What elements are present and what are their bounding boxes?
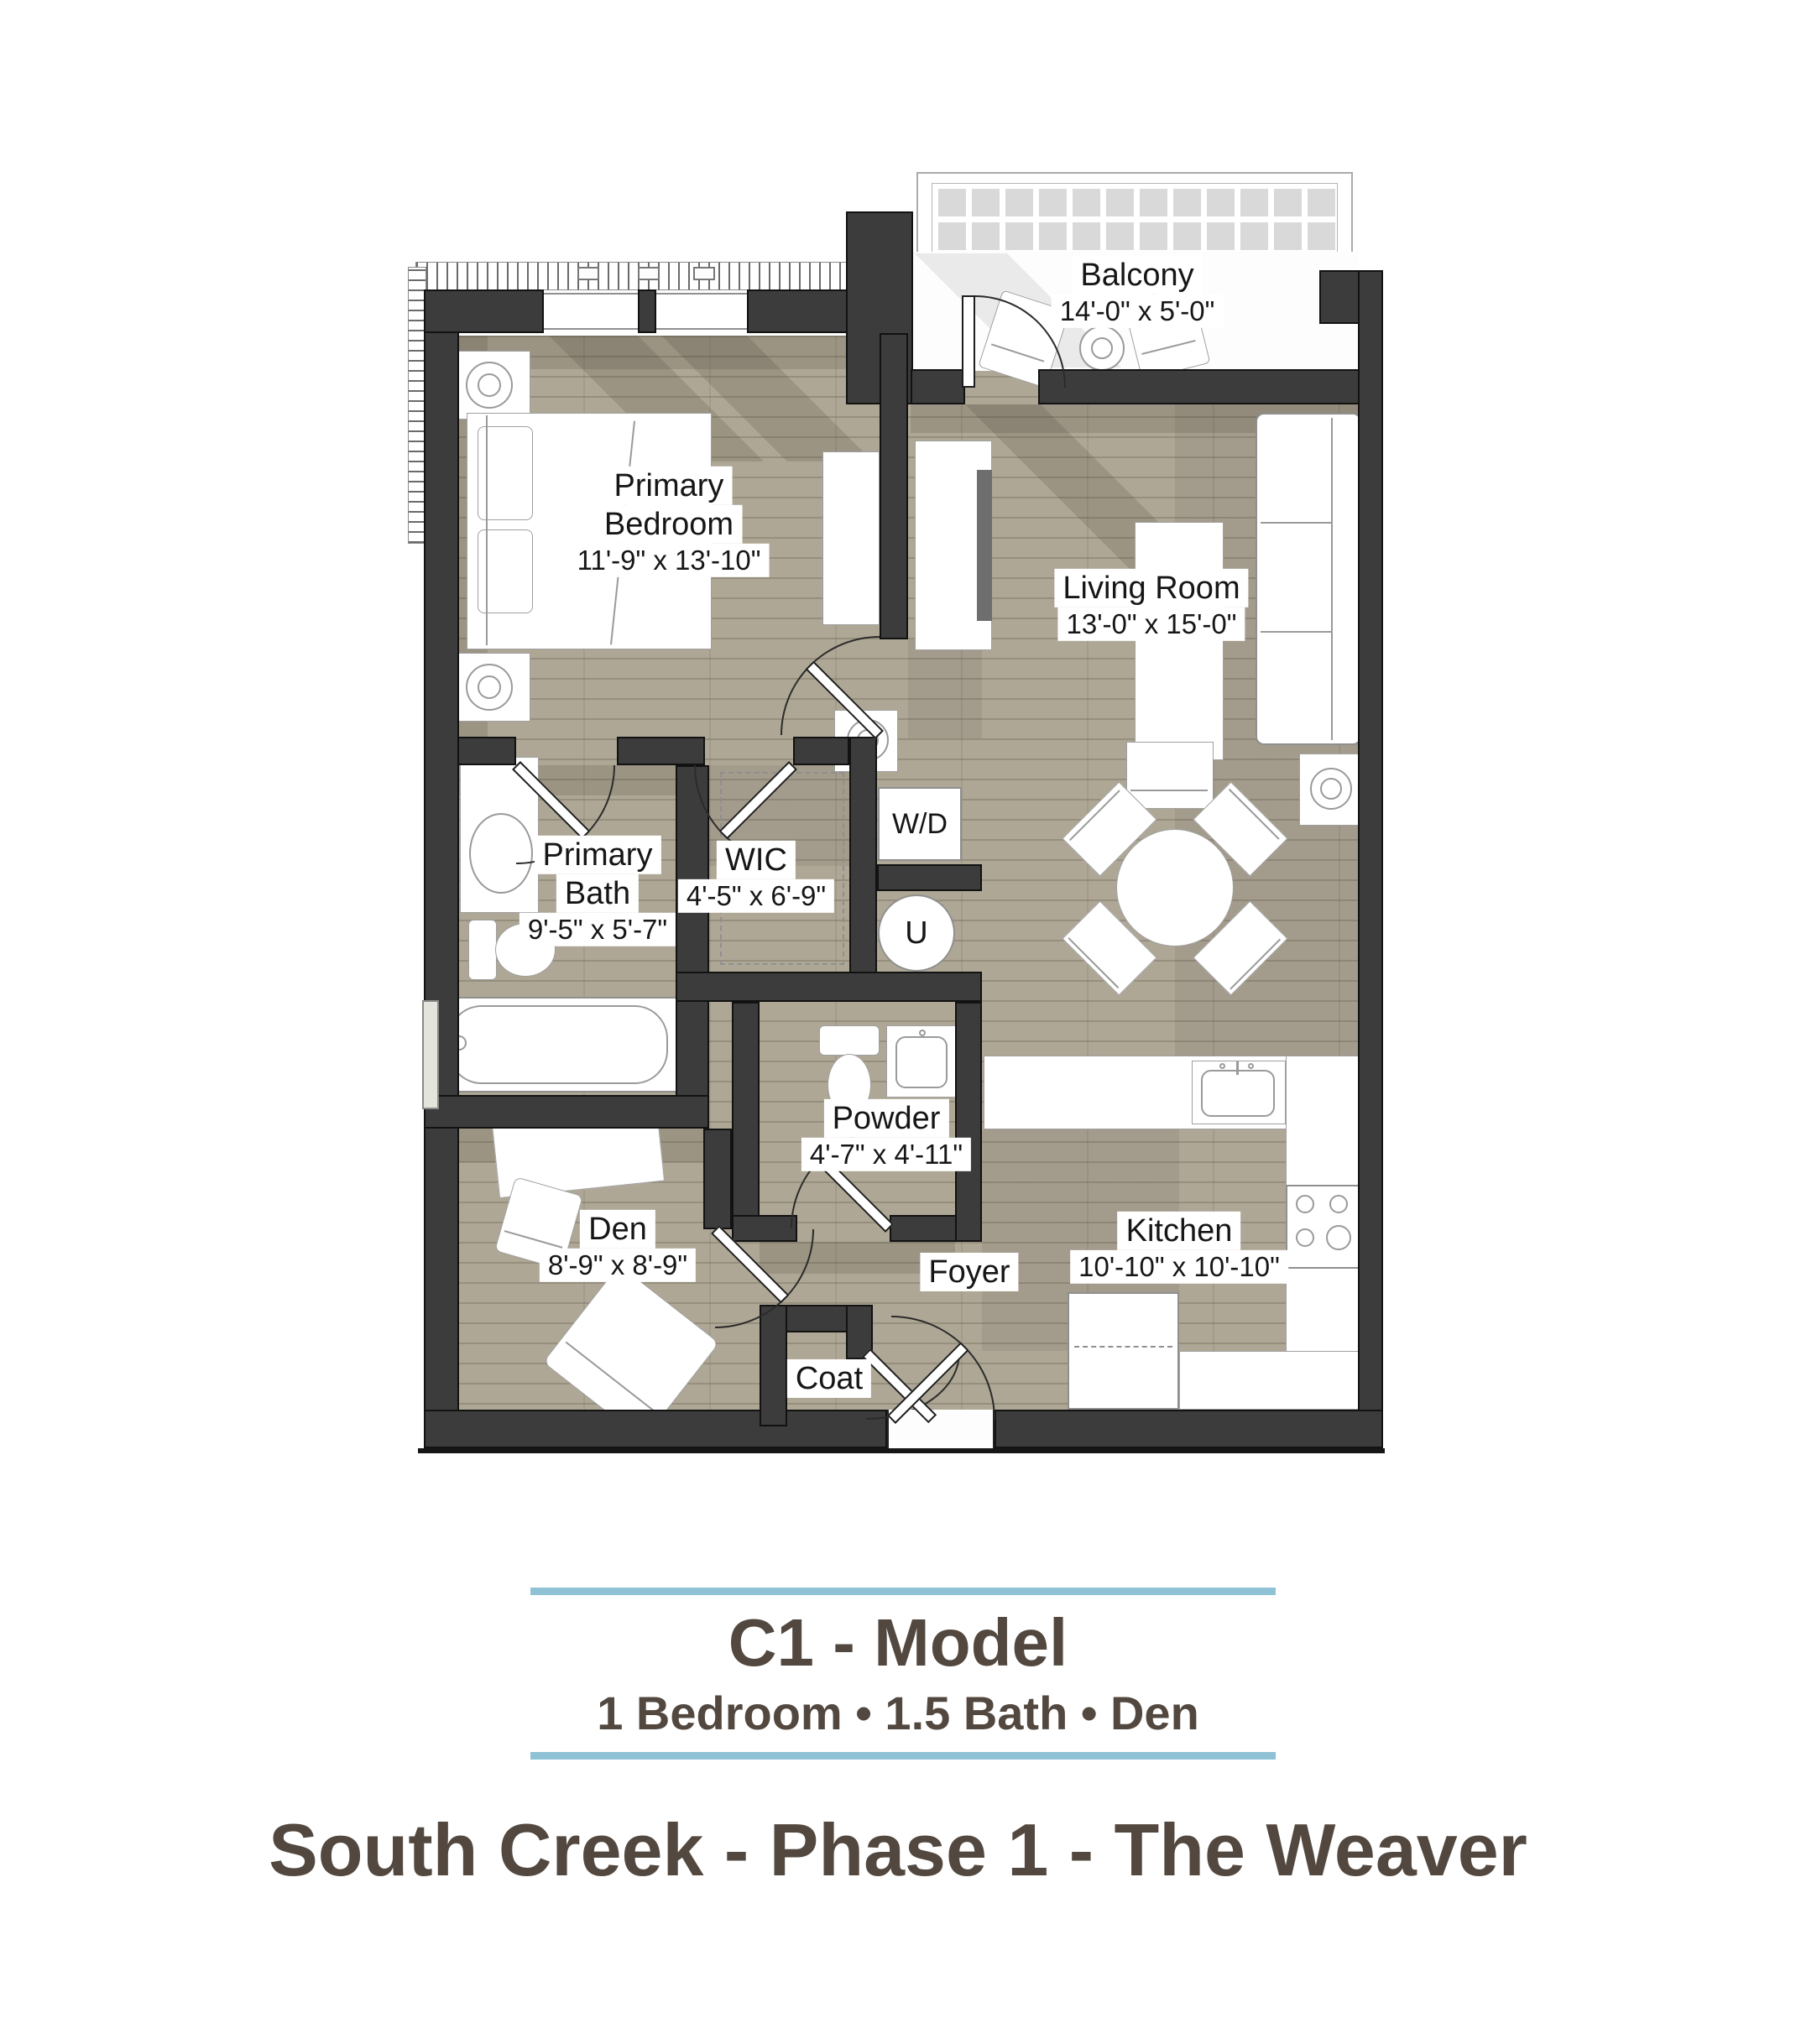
room-label-balcony: Balcony 14'-0" x 5'-0" xyxy=(1052,256,1224,328)
room-name: Powder xyxy=(824,1099,949,1138)
sofa-cushion-line xyxy=(1261,522,1331,524)
room-label-wic: WIC 4'-5" x 6'-9" xyxy=(678,841,834,913)
room-name: Coat xyxy=(787,1359,871,1398)
room-name: Primary xyxy=(535,836,661,874)
wall xyxy=(911,369,965,404)
room-label-kitchen: Kitchen 10'-10" x 10'-10" xyxy=(1070,1212,1288,1284)
wall xyxy=(1038,369,1364,404)
room-dims: 13'-0" x 15'-0" xyxy=(1058,607,1245,641)
washer-dryer-unit: W/D xyxy=(878,787,962,861)
room-label-foyer: Foyer xyxy=(920,1253,1018,1291)
window xyxy=(544,293,638,330)
powder-vanity xyxy=(886,1025,957,1098)
wall xyxy=(424,1095,709,1129)
wall xyxy=(877,864,982,891)
wall xyxy=(1358,270,1383,1448)
trellis-pergola xyxy=(932,183,1338,257)
window xyxy=(656,293,747,330)
wall xyxy=(424,289,459,1448)
wall xyxy=(424,289,544,333)
wall xyxy=(457,737,516,765)
room-label-living-room: Living Room 13'-0" x 15'-0" xyxy=(1054,569,1248,641)
divider-rule-top xyxy=(530,1588,1276,1595)
kitchen-counter-bottom xyxy=(1179,1351,1360,1410)
room-name: Bedroom xyxy=(596,505,742,544)
wall xyxy=(880,333,908,639)
unit-title: C1 - Model xyxy=(0,1601,1796,1685)
room-dims: 4'-5" x 6'-9" xyxy=(678,879,834,913)
balcony-table-inner xyxy=(1091,337,1113,359)
lamp-icon-inner xyxy=(1320,778,1342,800)
sofa-back-line xyxy=(1331,418,1333,740)
room-dims: 14'-0" x 5'-0" xyxy=(1052,295,1224,328)
room-dims: 11'-9" x 13'-10" xyxy=(569,544,770,577)
wall xyxy=(732,1002,760,1242)
window-vent xyxy=(693,267,715,280)
floorplan-sheet: W/D U xyxy=(0,0,1796,2044)
lamp-icon-inner xyxy=(478,675,501,699)
balcony-door-leaf xyxy=(962,295,975,388)
wall xyxy=(760,1305,787,1426)
kitchen-sink xyxy=(1192,1061,1286,1124)
room-name: Balcony xyxy=(1072,256,1202,295)
end-table xyxy=(1299,753,1361,826)
faucet-dot xyxy=(1219,1063,1225,1069)
room-dims: 4'-7" x 4'-11" xyxy=(801,1138,971,1171)
lamp-icon-inner xyxy=(478,373,501,397)
burner-icon xyxy=(1329,1195,1348,1213)
divider-rule-bottom xyxy=(530,1752,1276,1760)
sink-basin xyxy=(1201,1070,1275,1117)
tub-inner xyxy=(448,1005,668,1084)
wall-baseline xyxy=(418,1448,1385,1453)
room-dims: 10'-10" x 10'-10" xyxy=(1070,1250,1288,1284)
room-label-den: Den 8'-9" x 8'-9" xyxy=(540,1210,696,1282)
dining-chair xyxy=(1126,742,1214,809)
window-vent xyxy=(638,267,660,280)
window-vent xyxy=(577,267,599,280)
room-name: Kitchen xyxy=(1118,1212,1241,1250)
wall xyxy=(638,289,656,333)
unit-subtitle: 1 Bedroom • 1.5 Bath • Den xyxy=(0,1687,1796,1740)
room-name: Foyer xyxy=(920,1253,1018,1291)
washer-dryer-label: W/D xyxy=(892,808,948,841)
wall xyxy=(793,737,849,765)
faucet-line xyxy=(1236,1061,1239,1075)
utility-label: U xyxy=(905,915,927,952)
wall xyxy=(849,737,877,1002)
wall xyxy=(676,972,982,1002)
headboard-line xyxy=(486,415,488,645)
nightstand xyxy=(450,351,530,420)
wall xyxy=(995,1410,1383,1448)
tv-icon xyxy=(977,470,992,621)
room-dims: 8'-9" x 8'-9" xyxy=(540,1249,696,1282)
burner-icon xyxy=(1326,1225,1351,1250)
burner-icon xyxy=(1296,1228,1314,1247)
window-tub xyxy=(422,1000,439,1109)
bathtub xyxy=(438,997,678,1092)
sink-icon xyxy=(895,1036,948,1088)
chair-back-line xyxy=(1130,790,1208,791)
burner-icon xyxy=(1296,1195,1314,1213)
fridge xyxy=(1068,1292,1179,1410)
room-name: Bath xyxy=(556,874,639,913)
room-name: Living Room xyxy=(1054,569,1248,607)
dresser xyxy=(822,451,880,625)
room-label-primary-bedroom: Primary Bedroom 11'-9" x 13'-10" xyxy=(569,467,770,577)
dining-table xyxy=(1116,829,1234,946)
utility-water-heater: U xyxy=(878,894,955,972)
faucet-dot xyxy=(1248,1063,1254,1069)
wall xyxy=(424,1410,887,1448)
siding-hatch-top xyxy=(415,262,848,290)
wall xyxy=(676,765,709,1129)
room-label-powder: Powder 4'-7" x 4'-11" xyxy=(801,1099,971,1171)
stove xyxy=(1286,1185,1360,1269)
room-name: Primary xyxy=(606,467,733,505)
room-dims: 9'-5" x 5'-7" xyxy=(519,913,676,946)
room-name: Den xyxy=(580,1210,655,1249)
powder-toilet-tank xyxy=(819,1025,880,1056)
sofa xyxy=(1256,413,1361,745)
sofa-cushion-line xyxy=(1261,631,1331,633)
room-label-primary-bath: Primary Bath 9'-5" x 5'-7" xyxy=(519,836,676,946)
project-title: South Creek - Phase 1 - The Weaver xyxy=(0,1804,1796,1896)
nightstand xyxy=(450,653,530,722)
fridge-dashed xyxy=(1074,1299,1172,1348)
toilet-tank xyxy=(468,920,497,980)
chair-back-line xyxy=(1141,340,1196,355)
room-name: WIC xyxy=(717,841,796,879)
room-label-coat: Coat xyxy=(787,1359,871,1398)
faucet-dot xyxy=(919,1030,926,1036)
wall xyxy=(617,737,705,765)
wall xyxy=(703,1129,732,1229)
